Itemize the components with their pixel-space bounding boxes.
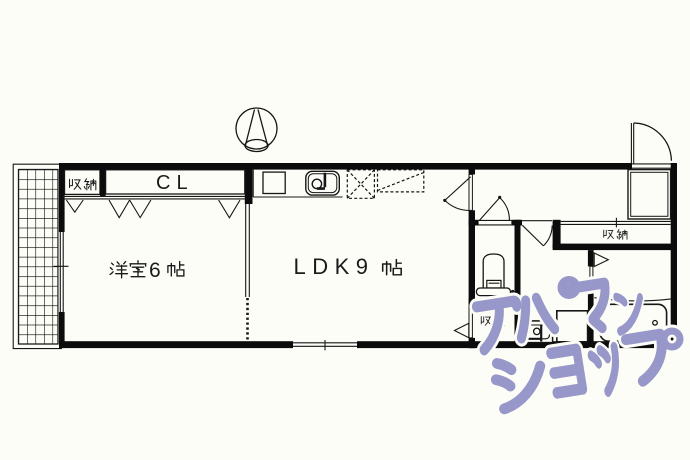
svg-text:CL: CL [156,172,194,194]
svg-text:LDK9: LDK9 [294,254,375,279]
svg-text:6: 6 [149,259,161,282]
